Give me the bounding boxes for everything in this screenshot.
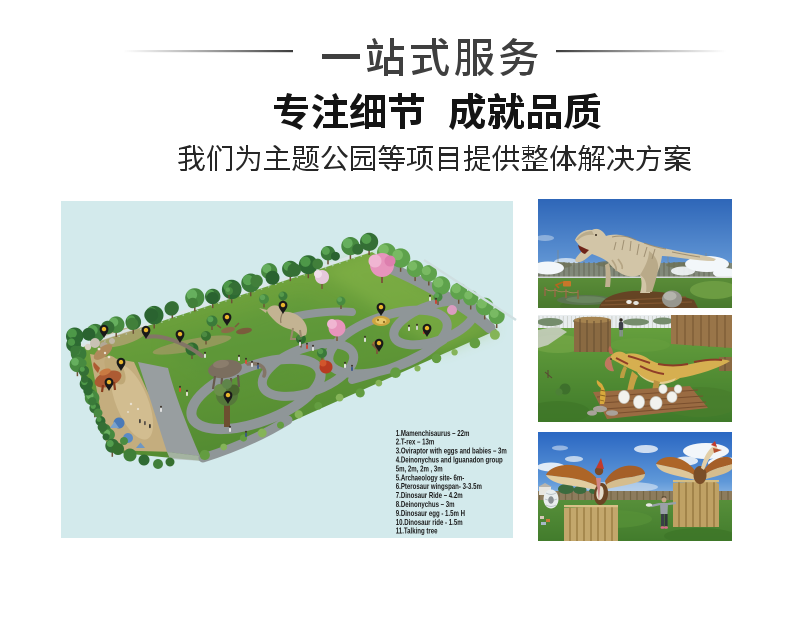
svg-text:4.Deinonychus and Iguanadon gr: 4.Deinonychus and Iguanadon group	[396, 457, 503, 465]
svg-text:3.Oviraptor with eggs and babi: 3.Oviraptor with eggs and babies – 3m	[396, 448, 507, 456]
svg-text:7.Dinosaur Ride – 4.2m: 7.Dinosaur Ride – 4.2m	[396, 493, 463, 501]
svg-text:6.Pterosaur wingspan- 3-3.5m: 6.Pterosaur wingspan- 3-3.5m	[396, 484, 482, 492]
svg-text:10.Dinosaur ride - 1.5m: 10.Dinosaur ride - 1.5m	[396, 519, 463, 527]
svg-text:9.Dinosaur egg - 1.5m H: 9.Dinosaur egg - 1.5m H	[396, 510, 465, 518]
svg-text:2.T-rex – 13m: 2.T-rex – 13m	[396, 439, 435, 447]
svg-text:11.Talking tree: 11.Talking tree	[396, 528, 438, 536]
svg-text:1.Mamenchisaurus – 22m: 1.Mamenchisaurus – 22m	[396, 430, 470, 438]
svg-text:5.Archaeology site- 6m-: 5.Archaeology site- 6m-	[396, 475, 465, 483]
svg-text:5m, 2m, 2m , 3m: 5m, 2m, 2m , 3m	[396, 466, 443, 474]
svg-text:8.Deinonychus – 3m: 8.Deinonychus – 3m	[396, 501, 455, 509]
